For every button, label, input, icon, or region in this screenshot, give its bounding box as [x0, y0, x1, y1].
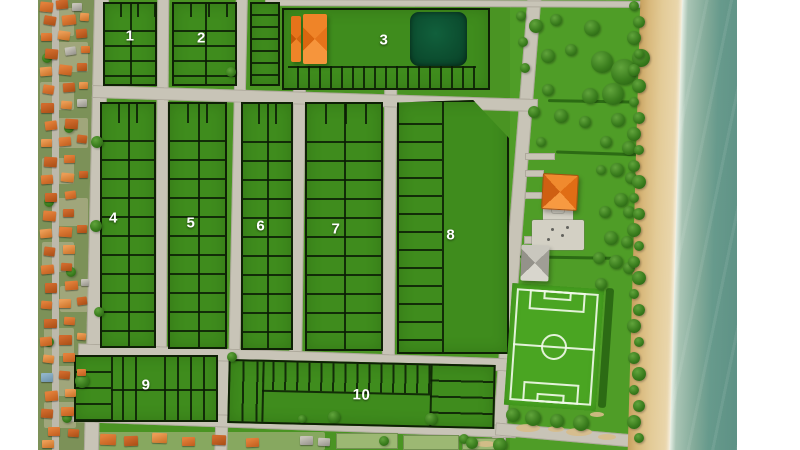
street-h-top	[265, 0, 660, 8]
beach-tree-icon	[627, 31, 641, 45]
house-roof	[65, 281, 79, 291]
house-roof	[48, 427, 60, 436]
lot-lines	[262, 362, 431, 393]
lot-lines	[267, 104, 269, 348]
house-roof	[61, 263, 73, 272]
beach-tree-icon	[632, 271, 646, 285]
house-roof	[152, 433, 167, 444]
house-roof	[43, 210, 57, 221]
house-roof	[65, 389, 76, 397]
house-roof	[63, 83, 76, 93]
house-roof	[62, 14, 77, 25]
beach-tree-icon	[634, 337, 644, 347]
beach-tree-icon	[628, 256, 640, 268]
tree-icon	[554, 109, 568, 123]
tree-icon	[425, 413, 437, 425]
lot-lines	[128, 104, 130, 346]
tree-icon	[298, 415, 306, 423]
beach-tree-icon	[634, 49, 644, 59]
tree-icon	[600, 136, 612, 148]
goal-box-bottom	[536, 393, 565, 404]
house-roof	[43, 246, 55, 256]
driveway-stub	[525, 153, 555, 160]
beach-tree-icon	[628, 64, 640, 76]
beach-tree-icon	[633, 112, 645, 124]
beach-tree-icon	[627, 319, 641, 333]
house-roof	[43, 15, 56, 26]
block-1: 1	[103, 2, 157, 86]
tree-icon	[582, 88, 598, 104]
block-9: 9	[74, 355, 218, 422]
block-label-4: 4	[109, 210, 118, 225]
house-roof	[79, 82, 88, 89]
block-8: 8	[397, 100, 509, 354]
tree-icon	[226, 67, 236, 77]
house-roof	[124, 436, 138, 446]
house-roof	[56, 0, 69, 10]
house-roof	[41, 373, 53, 382]
tree-icon	[525, 410, 541, 426]
beach-tree-icon	[627, 127, 641, 141]
patio-detail	[561, 234, 564, 237]
beach-tree-icon	[628, 160, 640, 172]
house-roof	[40, 228, 53, 238]
tree-icon	[573, 415, 589, 431]
beach-tree-icon	[634, 241, 644, 251]
house-roof	[61, 407, 74, 416]
house-roof	[42, 440, 54, 448]
house-roof	[246, 438, 259, 447]
house-roof	[42, 84, 54, 95]
lot-lines	[399, 107, 442, 347]
beach-tree-icon	[632, 367, 646, 381]
house-roof	[77, 63, 87, 71]
house-roof	[77, 99, 87, 107]
beach-tree-icon	[629, 193, 639, 203]
patio-detail	[566, 226, 569, 229]
lot-lines	[288, 66, 476, 88]
beach-tree-icon	[627, 223, 641, 237]
clubhouse-roof	[541, 173, 579, 211]
residential-inner-street	[52, 0, 59, 450]
tree-icon	[466, 437, 478, 449]
tree-icon	[610, 163, 624, 177]
beach-tree-icon	[632, 79, 646, 93]
tree-icon	[604, 231, 618, 245]
tree-icon	[90, 220, 102, 232]
house-roof	[72, 3, 82, 11]
patio-detail	[547, 238, 550, 241]
street-v4	[382, 86, 397, 370]
open-lot	[403, 435, 459, 450]
block-label-8: 8	[446, 227, 455, 242]
house-roof	[64, 46, 76, 55]
block-7: 7	[305, 102, 383, 351]
tree-icon	[596, 165, 606, 175]
lot-lines	[344, 104, 346, 349]
house-roof	[63, 209, 74, 217]
block-label-7: 7	[331, 221, 340, 236]
lot-lines	[429, 366, 493, 427]
house-roof	[68, 429, 80, 438]
tree-icon	[94, 307, 104, 317]
house-roof	[59, 136, 72, 146]
tree-icon	[609, 255, 623, 269]
block3-building-wing	[291, 16, 301, 62]
house-roof	[59, 227, 73, 238]
house-roof	[44, 120, 57, 130]
beach-tree-icon	[634, 145, 644, 155]
house-roof	[41, 175, 54, 185]
map-area: 12345678910	[38, 0, 737, 450]
block-6: 6	[241, 102, 293, 350]
ocean-water	[670, 0, 737, 450]
house-roof	[40, 1, 54, 12]
house-roof	[41, 103, 54, 113]
tree-icon	[227, 352, 237, 362]
block-10: 10	[227, 359, 495, 429]
block-label-1: 1	[126, 29, 135, 44]
tree-icon	[518, 37, 528, 47]
tree-icon	[528, 106, 540, 118]
tree-icon	[516, 11, 526, 21]
sand-patch	[598, 434, 616, 440]
block-label-5: 5	[186, 216, 195, 231]
soccer-field	[504, 283, 604, 411]
sand-patch	[590, 412, 604, 417]
tree-icon	[542, 84, 554, 96]
tree-icon	[379, 436, 389, 446]
driveway-stub	[525, 170, 544, 177]
house-roof	[59, 335, 72, 345]
house-roof	[63, 245, 75, 254]
beach-tree-icon	[633, 400, 645, 412]
block-5: 5	[168, 102, 227, 349]
beach-tree-icon	[633, 304, 645, 316]
lot-lines	[111, 389, 216, 391]
beach-tree-icon	[629, 385, 639, 395]
tree-icon	[529, 19, 543, 33]
tree-icon	[591, 51, 613, 73]
beach-tree-icon	[629, 97, 639, 107]
tree-icon	[550, 414, 564, 428]
house-roof	[63, 353, 75, 362]
goal-box-top	[543, 290, 572, 301]
house-roof	[100, 434, 116, 446]
house-roof	[61, 172, 75, 182]
tree-icon	[506, 408, 520, 422]
house-roof	[41, 33, 52, 41]
tree-icon	[520, 63, 530, 73]
beach-tree-icon	[629, 289, 639, 299]
house-roof	[77, 134, 88, 143]
house-roof	[44, 319, 57, 328]
house-roof	[300, 436, 313, 445]
beach-tree-icon	[633, 208, 645, 220]
lot-lines	[442, 102, 444, 352]
house-roof	[61, 101, 73, 110]
house-roof	[81, 279, 89, 286]
house-roof	[77, 225, 87, 233]
tree-icon	[493, 438, 507, 450]
house-roof	[43, 354, 55, 363]
house-roof	[79, 171, 88, 178]
house-roof	[80, 13, 90, 22]
tree-icon	[584, 20, 600, 36]
house-roof	[81, 46, 90, 53]
house-roof	[76, 29, 88, 39]
house-roof	[318, 438, 330, 447]
house-roof	[65, 119, 79, 130]
tree-icon	[593, 252, 605, 264]
house-roof	[41, 409, 54, 419]
tree-icon	[611, 113, 625, 127]
tree-icon	[599, 206, 611, 218]
tree-icon	[602, 83, 624, 105]
house-roof	[77, 369, 86, 376]
tree-icon	[536, 137, 546, 147]
aerial-subdivision-map: 12345678910	[0, 0, 800, 450]
beach-tree-icon	[627, 415, 641, 429]
tree-icon	[550, 14, 562, 26]
block-4: 4	[100, 102, 156, 348]
tree-icon	[328, 411, 340, 423]
beach-tree-icon	[632, 175, 646, 189]
beach-tree-icon	[634, 433, 644, 443]
block-label-9: 9	[142, 378, 151, 393]
house-roof	[64, 317, 76, 326]
lot-lines	[229, 361, 262, 422]
house-roof	[182, 437, 195, 446]
house-roof	[40, 67, 53, 77]
house-roof	[45, 193, 57, 202]
house-roof	[59, 299, 71, 308]
beach-tree-icon	[629, 1, 639, 11]
house-roof	[41, 139, 52, 147]
house-roof	[58, 64, 72, 76]
tree-icon	[541, 49, 555, 63]
house-roof	[77, 333, 87, 341]
tree-icon	[91, 136, 103, 148]
house-roof	[65, 190, 77, 199]
block-strip	[250, 2, 280, 86]
house-roof	[45, 283, 57, 293]
lot-lines	[252, 4, 278, 84]
house-roof	[64, 155, 75, 163]
house-roof	[40, 337, 53, 347]
block-label-10: 10	[352, 387, 370, 402]
patio-detail	[551, 228, 554, 231]
house-roof	[44, 157, 58, 168]
tree-icon	[565, 44, 577, 56]
house-roof	[212, 435, 226, 445]
house-roof	[45, 390, 59, 401]
tree-icon	[75, 374, 89, 388]
block3-building-roof	[303, 14, 327, 64]
house-roof	[41, 301, 53, 310]
lot-lines	[198, 104, 200, 347]
block-label-3: 3	[380, 32, 389, 47]
pond	[410, 12, 467, 66]
house-roof	[45, 48, 59, 59]
beach-tree-icon	[628, 352, 640, 364]
block-label-6: 6	[256, 219, 265, 234]
gray-annex-building	[520, 245, 549, 282]
house-roof	[41, 264, 55, 274]
beach-tree-icon	[633, 16, 645, 28]
tree-icon	[579, 116, 591, 128]
house-roof	[77, 296, 88, 305]
tree-icon	[621, 236, 633, 248]
tree-icon	[614, 193, 628, 207]
lot-lines	[76, 357, 111, 420]
tree-icon	[595, 278, 607, 290]
block-label-2: 2	[197, 30, 206, 45]
house-roof	[57, 30, 70, 41]
house-roof	[59, 371, 71, 380]
